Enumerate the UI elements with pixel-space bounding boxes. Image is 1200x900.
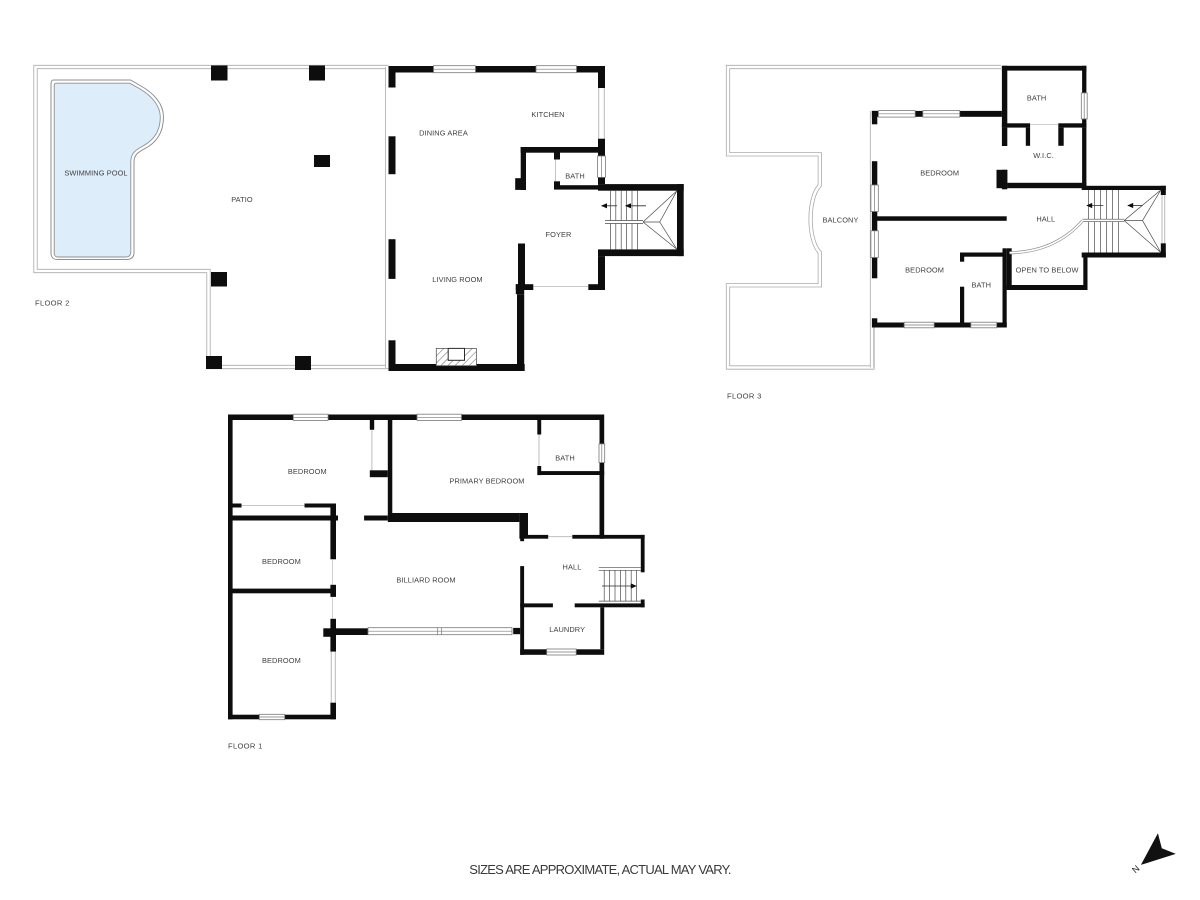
svg-text:HALL: HALL (563, 563, 582, 572)
svg-text:BEDROOM: BEDROOM (288, 467, 327, 476)
svg-text:OPEN TO BELOW: OPEN TO BELOW (1016, 265, 1079, 274)
svg-text:BATH: BATH (565, 172, 585, 181)
svg-text:LAUNDRY: LAUNDRY (549, 625, 585, 634)
svg-text:BEDROOM: BEDROOM (262, 557, 301, 566)
svg-text:PRIMARY BEDROOM: PRIMARY BEDROOM (449, 477, 524, 486)
svg-text:BATH: BATH (972, 280, 992, 289)
svg-text:FOYER: FOYER (546, 230, 572, 239)
svg-text:BEDROOM: BEDROOM (262, 656, 301, 665)
svg-text:SIZES ARE APPROXIMATE, ACTUAL: SIZES ARE APPROXIMATE, ACTUAL MAY VARY. (469, 862, 731, 877)
svg-text:PATIO: PATIO (231, 195, 253, 204)
svg-text:BATH: BATH (555, 454, 575, 463)
svg-text:SWIMMING POOL: SWIMMING POOL (64, 169, 127, 178)
svg-text:BEDROOM: BEDROOM (920, 168, 959, 177)
svg-text:FLOOR 3: FLOOR 3 (727, 392, 762, 401)
svg-text:BATH: BATH (1027, 93, 1047, 102)
svg-text:W.I.C.: W.I.C. (1033, 151, 1054, 160)
svg-text:BEDROOM: BEDROOM (905, 266, 944, 275)
svg-text:KITCHEN: KITCHEN (531, 110, 564, 119)
svg-text:BILLIARD ROOM: BILLIARD ROOM (396, 576, 455, 585)
svg-text:LIVING ROOM: LIVING ROOM (432, 275, 482, 284)
svg-text:HALL: HALL (1036, 214, 1055, 223)
svg-text:BALCONY: BALCONY (822, 215, 858, 224)
svg-text:FLOOR 1: FLOOR 1 (228, 742, 263, 751)
svg-text:DINING AREA: DINING AREA (419, 129, 468, 138)
svg-text:FLOOR 2: FLOOR 2 (35, 298, 70, 307)
